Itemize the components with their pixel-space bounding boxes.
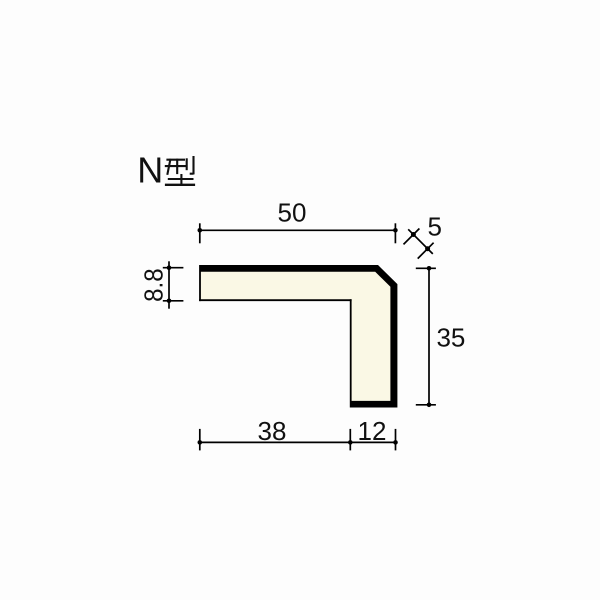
svg-text:8.8: 8.8 (139, 268, 169, 302)
svg-text:35: 35 (436, 322, 465, 352)
svg-text:50: 50 (278, 197, 307, 227)
svg-text:12: 12 (358, 416, 387, 446)
svg-text:38: 38 (258, 416, 287, 446)
svg-text:5: 5 (427, 211, 441, 241)
svg-text:N: N (137, 150, 163, 191)
